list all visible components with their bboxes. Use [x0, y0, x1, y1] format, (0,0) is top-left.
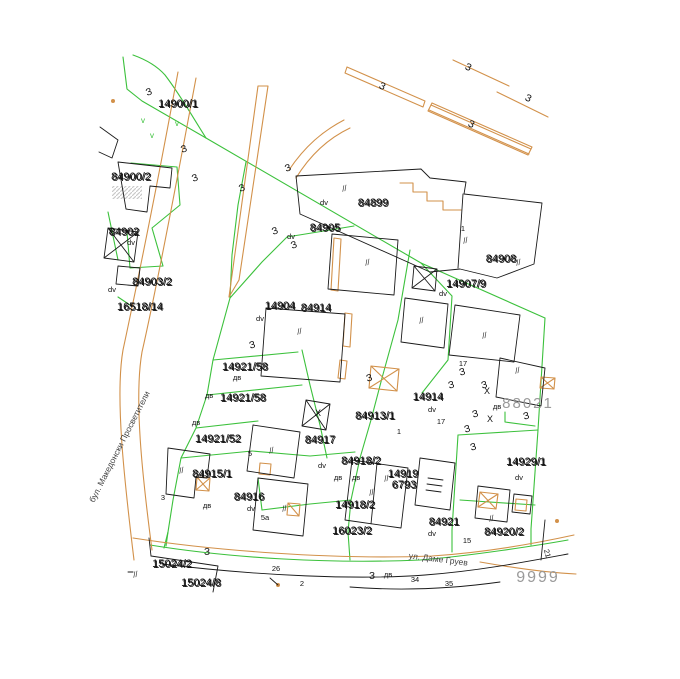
annotation-label: dv [256, 314, 264, 323]
annotation-label: 2 [300, 579, 304, 588]
ze-symbol: З [463, 61, 473, 74]
annotation-label: 1 [461, 224, 465, 233]
map-symbols-layer: ЗЗЗЗЗЗЗЗЗЗЗЗЗЗЗЗЗЗЗЗЗЗ//////////////////… [131, 61, 533, 582]
hatch-symbol: // [513, 365, 521, 375]
ze-symbol: З [369, 571, 375, 582]
annotation-label: дв [233, 373, 241, 382]
parcel-label: 14904 [265, 300, 296, 312]
hatch-symbol: // [480, 330, 488, 340]
ze-symbol: З [248, 339, 257, 351]
annotation-label: 17 [437, 417, 445, 426]
parcel-label: 84917 [305, 434, 336, 446]
annotation-label: 5а [261, 513, 270, 522]
annotation-label: dv [247, 504, 255, 513]
annotation-label: dv [439, 289, 447, 298]
annotation-label: дв [192, 418, 200, 427]
parcel-label: 84899 [358, 197, 389, 209]
parcel-label: 14900/1 [158, 98, 198, 110]
parcel-label: 84915/1 [192, 468, 232, 480]
parcel-label: 84903/2 [132, 276, 172, 288]
ze-symbol: З [289, 239, 298, 251]
parcel-label: 84900/2 [111, 171, 151, 183]
hatch-symbol: // [363, 257, 371, 267]
vegetation-mark: v [141, 116, 145, 125]
street-name-label: бул. Македонски Просветители [87, 389, 152, 504]
x-symbol: Х [484, 386, 490, 396]
annotation-label: 17 [459, 359, 467, 368]
parcel-label: 16023/2 [332, 525, 372, 537]
parcel-label: 15024/8 [181, 577, 221, 589]
parcel-label: 14921/58 [220, 392, 266, 404]
ze-symbol: З [283, 162, 292, 174]
ze-symbol: З [365, 372, 374, 384]
hatch-symbol: // [417, 315, 425, 325]
vegetation-mark: v [150, 131, 154, 140]
grid-number-label: 9999 [516, 569, 560, 586]
ze-symbol: З [463, 423, 472, 435]
annotation-label: 35 [445, 579, 453, 588]
annotation-label: dv [108, 285, 116, 294]
parcel-label: 84913/1 [355, 410, 395, 422]
hatch-symbol: // [340, 183, 348, 193]
parcel-label: 84916 [234, 491, 265, 503]
annotation-label: дв [493, 402, 501, 411]
hatch-symbol: // [487, 513, 495, 523]
parcel-label: 14914 [413, 391, 444, 403]
annotation-label: дв [352, 473, 360, 482]
hatch-symbol: // [295, 326, 303, 336]
annotation-label: 34 [411, 575, 419, 584]
gray-hatch-area [112, 186, 142, 199]
annotation-label: 3 [161, 493, 165, 502]
ze-symbol: З [237, 182, 246, 194]
ze-symbol: З [471, 408, 480, 420]
ze-symbol: З [270, 225, 279, 237]
parcel-label: 84905 [310, 222, 341, 234]
annotation-label: dv [428, 405, 436, 414]
parcel-label: 14918/2 [335, 499, 375, 511]
ze-symbol: З [204, 547, 210, 558]
annotation-label: 5 [248, 449, 252, 458]
annotation-label: dv [320, 198, 328, 207]
ze-symbol: З [144, 86, 153, 98]
parcel-label: 84920/2 [484, 526, 524, 538]
parcel-label: 6793 [392, 479, 416, 491]
parcel-label: 84902 [109, 226, 140, 238]
x-symbol: Х [315, 408, 321, 418]
cadastral-map-canvas: ЗЗЗЗЗЗЗЗЗЗЗЗЗЗЗЗЗЗЗЗЗЗ//////////////////… [0, 0, 680, 679]
parcel-boundaries-green [108, 55, 568, 561]
annotation-label: dv [515, 473, 523, 482]
ze-symbol: З [190, 172, 199, 184]
vegetation-mark: v [175, 119, 179, 128]
annotation-label: dv [428, 529, 436, 538]
annotation-label: dv [127, 238, 135, 247]
annotation-label: дв [384, 570, 392, 579]
parcel-label: 84918/2 [341, 455, 381, 467]
ze-symbol: З [179, 143, 188, 155]
parcel-label: 14921/58 [222, 361, 268, 373]
parcel-label: 14929/1 [506, 456, 546, 468]
annotation-label: dv [318, 461, 326, 470]
ze-symbol: З [469, 441, 478, 453]
ze-symbol: З [458, 366, 467, 378]
cadastral-map-viewport: ЗЗЗЗЗЗЗЗЗЗЗЗЗЗЗЗЗЗЗЗЗЗ//////////////////… [0, 0, 680, 679]
parcel-label: 15024/2 [152, 558, 192, 570]
parcel-label: 14907/9 [446, 278, 486, 290]
street-name-label: ул. Даме Груев [408, 550, 469, 567]
ze-symbol: З [523, 92, 533, 105]
annotation-label: дв [334, 473, 342, 482]
ze-symbol: З [447, 379, 456, 391]
grid-number-label: 88021 [502, 395, 554, 412]
x-symbol: Х [487, 414, 493, 424]
annotation-label: дв [205, 391, 213, 400]
parcel-label: 84908 [486, 253, 517, 265]
hatch-symbol: // [461, 235, 469, 245]
parcel-label: 84921 [429, 516, 460, 528]
annotation-label: 15 [463, 536, 471, 545]
parcel-label: 14921/52 [195, 433, 241, 445]
annotation-label: 26 [272, 564, 280, 573]
annotation-label: dv [287, 232, 295, 241]
ze-symbol: З [522, 410, 531, 422]
hatch-symbol: // [267, 445, 275, 455]
parcel-label: 16518/14 [117, 301, 163, 313]
annotation-label: 1 [397, 427, 401, 436]
parcel-label: 84914 [301, 302, 332, 314]
annotation-label: дв [203, 501, 211, 510]
hatch-symbol: // [131, 569, 139, 579]
